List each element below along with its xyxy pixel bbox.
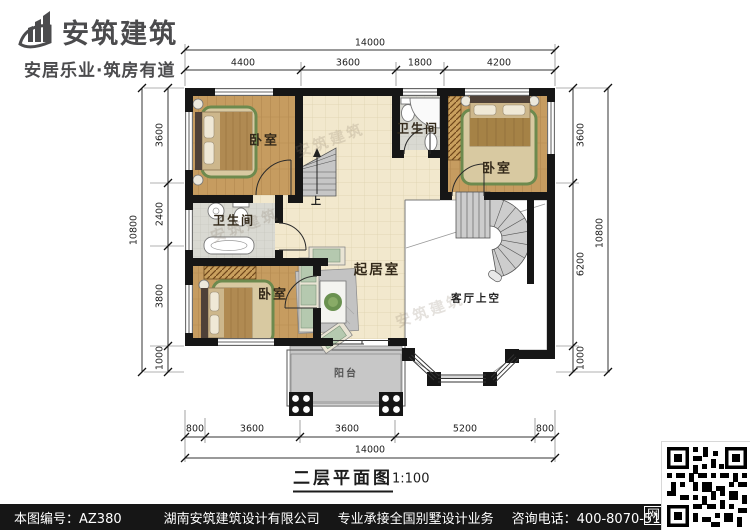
stairs-up-label: 上: [311, 193, 323, 208]
footer-business: 专业承接全国别墅设计业务: [338, 508, 494, 527]
dim-bottom-overall: 14000: [355, 445, 385, 456]
dim-top-seg-2: 3600: [336, 58, 360, 69]
room-label-bathroom-top: 卫生间: [397, 120, 439, 137]
footer-info: 湖南安筑建筑设计有限公司 专业承接全国别墅设计业务 咨询电话：400-8070-…: [164, 508, 669, 527]
qr-code: [661, 441, 750, 530]
dim-left-overall: 10800: [129, 215, 140, 245]
drawing-scale: 1:100: [392, 472, 429, 487]
dim-top-seg-4: 4200: [487, 58, 511, 69]
room-label-bathroom-left: 卫生间: [213, 212, 255, 229]
dim-left-seg-4: 1000: [155, 346, 166, 370]
drawing-title: 二层平面图: [293, 464, 393, 493]
drawing-serial: 本图编号：AZ380: [14, 508, 122, 527]
qr-code-pattern: [667, 447, 747, 527]
footer-bar: 本图编号：AZ380 湖南安筑建筑设计有限公司 专业承接全国别墅设计业务 咨询电…: [0, 504, 750, 530]
dim-top-overall: 14000: [355, 38, 385, 49]
dim-right-seg-1: 3600: [576, 123, 587, 147]
bedroom-tl-furniture: [193, 99, 256, 185]
dim-left-seg-2: 2400: [155, 202, 166, 226]
dim-bottom-seg-2: 3600: [240, 424, 264, 435]
dim-right-seg-3: 1000: [576, 346, 587, 370]
dim-bottom-seg-3: 3600: [335, 424, 359, 435]
room-label-bedroom-tl: 卧室: [249, 130, 279, 149]
dim-left-seg-1: 3600: [155, 123, 166, 147]
dim-right-overall: 10800: [595, 218, 606, 248]
dim-bottom-seg-1: 800: [186, 424, 204, 435]
room-label-void-above-living: 客厅上空: [451, 291, 501, 306]
dim-left-seg-3: 3800: [155, 284, 166, 308]
room-label-bedroom-tr: 卧室: [482, 158, 512, 177]
room-label-living: 起居室: [354, 258, 401, 278]
footer-company: 湖南安筑建筑设计有限公司: [164, 508, 320, 527]
dim-bottom-seg-5: 800: [536, 424, 554, 435]
dim-top-seg-3: 1800: [408, 58, 432, 69]
dim-right-seg-2: 6200: [576, 252, 587, 276]
room-label-bedroom-bl: 卧室: [258, 284, 288, 303]
dim-bottom-seg-4: 5200: [453, 424, 477, 435]
floor-plan-sheet: 安筑建筑 安居乐业·筑房有道: [0, 0, 750, 530]
dim-top-seg-1: 4400: [231, 58, 255, 69]
room-label-balcony: 阳台: [334, 365, 358, 380]
